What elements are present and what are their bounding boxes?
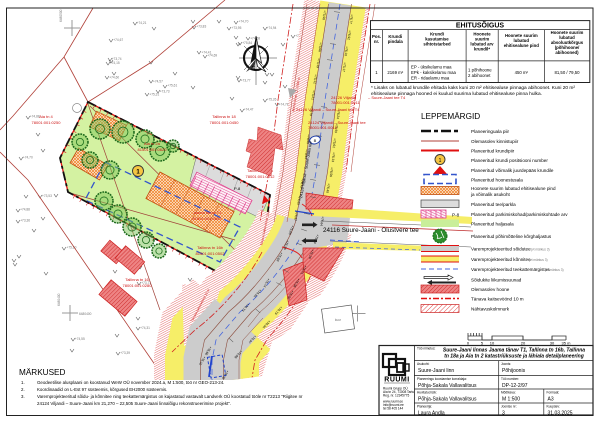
svg-text:(vt märkus 3): (vt märkus 3) [529, 258, 548, 262]
svg-text:Kuupäev:: Kuupäev: [547, 405, 561, 409]
svg-text:81501:001:0620: 81501:001:0620 [138, 147, 168, 152]
svg-text:+74,31: +74,31 [140, 326, 150, 330]
svg-text:78001:001:0012: 78001:001:0012 [308, 125, 338, 130]
svg-text:RUUMI: RUUMI [384, 377, 409, 384]
svg-text:Joonis:: Joonis: [501, 362, 511, 366]
svg-text:Varemprojekteeritud teekattemä: Varemprojekteeritud teekattemärgistus [471, 267, 550, 272]
svg-text:tn 18a ja Aia tn 2 katastriüks: tn 18a ja Aia tn 2 katastriüksuste ja lä… [444, 354, 584, 360]
svg-text:+73,73: +73,73 [160, 89, 170, 93]
svg-text:Reg. nr. 12345775: Reg. nr. 12345775 [383, 394, 409, 398]
svg-text:3.: 3. [21, 394, 25, 399]
svg-text:Planeeritud põhimõtteline kõrg: Planeeritud põhimõtteline kõrghaljastus [471, 234, 552, 239]
svg-text:Hoonete suurim lubatud ehitise: Hoonete suurim lubatud ehitisealune pind [471, 186, 556, 191]
svg-text:+74,41: +74,41 [202, 50, 212, 54]
svg-text:Nähtavuskolmnurk: Nähtavuskolmnurk [471, 307, 510, 312]
svg-text:3: 3 [502, 411, 505, 417]
svg-text:Planeeringuala piir: Planeeringuala piir [471, 129, 510, 134]
svg-text:78001:001:0450: 78001:001:0450 [210, 120, 240, 125]
svg-text:EHITUSÕIGUS: EHITUSÕIGUS [456, 21, 505, 30]
svg-text:Formaat:: Formaat: [547, 391, 560, 395]
svg-text:Olemasolev kinnistupiir: Olemasolev kinnistupiir [471, 139, 519, 144]
svg-text:6480500: 6480500 [59, 9, 63, 22]
svg-text:M 1:500: M 1:500 [502, 397, 520, 403]
svg-text:B: B [314, 138, 317, 143]
svg-text:Töö nimetus:: Töö nimetus: [417, 347, 436, 351]
svg-text:+73,53: +73,53 [42, 194, 52, 198]
svg-text:sihtotstarbed: sihtotstarbed [423, 42, 451, 47]
svg-text:MÄRKUSED: MÄRKUSED [19, 367, 65, 377]
svg-text:N: N [252, 66, 256, 72]
svg-text:krundil*: krundil* [474, 47, 490, 52]
svg-text:+75,84: +75,84 [242, 41, 252, 45]
svg-text:Suure-Jaani linn: Suure-Jaani linn [418, 368, 454, 374]
svg-text:Planeeritud parkimiskohad/park: Planeeritud parkimiskohad/parkimiskohtad… [471, 212, 568, 217]
svg-text:81501:001:0502: 81501:001:0502 [196, 251, 226, 256]
svg-text:ja võimalik asukoht: ja võimalik asukoht [470, 192, 511, 197]
svg-text:* Lisaks on lubatud krundile e: * Lisaks on lubatud krundile ehitada kak… [371, 85, 575, 91]
svg-text:+73,39: +73,39 [120, 351, 130, 355]
svg-text:+73,77: +73,77 [241, 78, 251, 82]
svg-text:Asukoht:: Asukoht: [417, 362, 430, 366]
svg-text:LEPPEMÄRGID: LEPPEMÄRGID [421, 111, 480, 121]
svg-text:Planeeritud võimalik juurdepää: Planeeritud võimalik juurdepääs krundile [471, 168, 554, 173]
svg-text:+74,60: +74,60 [109, 76, 119, 80]
svg-text:P-8: P-8 [234, 186, 241, 191]
svg-text:20: 20 [521, 341, 526, 346]
svg-text:Tallinna tn 16b: Tallinna tn 16b [197, 245, 224, 250]
svg-text:+74,21: +74,21 [137, 21, 147, 25]
svg-text:2.: 2. [21, 387, 25, 392]
svg-text:+73,36: +73,36 [20, 219, 30, 223]
svg-text:Koordinaadid on L-Est 97 süste: Koordinaadid on L-Est 97 süsteemis, kõrg… [37, 387, 167, 392]
svg-text:+74,58: +74,58 [250, 36, 260, 40]
svg-text:2 abihoonet: 2 abihoonet [468, 73, 491, 78]
svg-text:(vt märkus 3): (vt märkus 3) [531, 248, 550, 252]
svg-text:Tänava kaitsevöönd 10 m: Tänava kaitsevöönd 10 m [471, 297, 524, 302]
svg-text:Aia tn 4: Aia tn 4 [39, 114, 53, 119]
svg-text:30: 30 [550, 341, 555, 346]
svg-text:ehitisealuse pinnaga hooned ei: ehitisealuse pinnaga hooned ei kuulud su… [371, 91, 542, 97]
svg-text:Varemprojekteeritud kõnnitee: Varemprojekteeritud kõnnitee [471, 257, 531, 262]
svg-text:nr.: nr. [374, 39, 379, 44]
svg-text:EPk - kaksikelamu maa: EPk - kaksikelamu maa [411, 70, 457, 75]
svg-text:ehitisealune pind: ehitisealune pind [504, 43, 539, 48]
svg-text:+75,61: +75,61 [167, 84, 177, 88]
svg-text:Mõõtkava:: Mõõtkava: [501, 391, 516, 395]
svg-text:Varemprojekteeritud sõidu- ja: Varemprojekteeritud sõidu- ja kõnnitee n… [37, 394, 303, 399]
svg-text:Geodeetilise alusplaani on koo: Geodeetilise alusplaani on koostanud WeW… [37, 380, 224, 385]
svg-text:Põhijoonis: Põhijoonis [502, 368, 526, 374]
svg-text:Olemasolev hoone: Olemasolev hoone [471, 287, 510, 292]
svg-text:78001:001:0280: 78001:001:0280 [123, 283, 153, 288]
svg-text:+74,78: +74,78 [279, 102, 289, 106]
svg-text:10: 10 [490, 341, 495, 346]
svg-text:Põhja-Sakala Vallavalitsus: Põhja-Sakala Vallavalitsus [418, 397, 477, 403]
svg-text:EP - üksikelamu maa: EP - üksikelamu maa [411, 65, 452, 70]
svg-text:24126 Viljandi – Suure-Jaani t: 24126 Viljandi – Suure-Jaani tee T4 [296, 107, 360, 112]
svg-text:tel 58 405 144: tel 58 405 144 [383, 407, 403, 411]
svg-text:Aia tn 2a: Aia tn 2a [144, 141, 161, 146]
svg-text:kuur: kuur [335, 318, 342, 322]
svg-text:Tallinna tn 16: Tallinna tn 16 [125, 277, 149, 282]
svg-text:+74,88: +74,88 [20, 208, 30, 212]
svg-text:Planeeritud hoonestusala: Planeeritud hoonestusala [471, 178, 523, 183]
svg-text:DP-12-2/97: DP-12-2/97 [502, 383, 528, 389]
svg-text:Põhja-Sakala Vallavalitsus: Põhja-Sakala Vallavalitsus [418, 383, 477, 389]
svg-text:+74,47: +74,47 [244, 108, 254, 112]
svg-text:+74,94: +74,94 [267, 26, 277, 30]
svg-text:Joonise nr:: Joonise nr: [501, 405, 517, 409]
svg-text:Huvitatud isik:: Huvitatud isik: [417, 391, 437, 395]
svg-text:Varemprojekteeritud sõidutee: Varemprojekteeritud sõidutee [471, 247, 531, 252]
svg-text:+74,55: +74,55 [75, 337, 85, 341]
svg-text:35 m: 35 m [562, 341, 572, 346]
svg-text:6480400: 6480400 [57, 293, 61, 306]
svg-text:2169 m²: 2169 m² [387, 70, 403, 75]
svg-text:24124 Viljandi – Suure-Jaani k: 24124 Viljandi – Suure-Jaani km 21,270 –… [37, 401, 231, 406]
svg-text:81,50 / 79,50: 81,50 / 79,50 [554, 70, 580, 75]
svg-text:Töö number:: Töö number: [501, 377, 519, 381]
svg-text:+74,70: +74,70 [239, 20, 249, 24]
svg-text:Sõidukite liikumissuunad: Sõidukite liikumissuunad [471, 278, 522, 283]
svg-text:81501:001:0603: 81501:001:0603 [193, 216, 223, 221]
svg-text:Jaama tänav T1: Jaama tänav T1 [193, 210, 222, 215]
svg-text:Planeeritud tee/parkla: Planeeritud tee/parkla [471, 202, 516, 207]
svg-text:abihooned): abihooned) [555, 50, 579, 55]
svg-text:Planeeritud krundipiir: Planeeritud krundipiir [471, 149, 515, 154]
svg-text:Planeeringu koostamise korrald: Planeeringu koostamise korraldaja: [417, 377, 467, 381]
svg-text:1.: 1. [21, 380, 25, 385]
svg-text:78001:001:0250: 78001:001:0250 [32, 120, 62, 125]
svg-text:pindala: pindala [388, 39, 404, 44]
svg-text:A3: A3 [548, 397, 554, 403]
svg-text:+75,26: +75,26 [267, 98, 277, 102]
svg-text:P-8: P-8 [452, 213, 460, 218]
svg-text:+74,57: +74,57 [153, 79, 163, 83]
svg-text:+74,70: +74,70 [23, 156, 33, 160]
svg-text:6480400: 6480400 [79, 312, 92, 316]
svg-text:+74,67: +74,67 [113, 38, 123, 42]
svg-text:1 põhihoone: 1 põhihoone [468, 68, 492, 73]
svg-text:+73,83: +73,83 [196, 25, 206, 29]
svg-text:450 m²: 450 m² [515, 70, 529, 75]
svg-text:(vt märkus 3): (vt märkus 3) [545, 268, 564, 272]
svg-text:Planeeritud haljasala: Planeeritud haljasala [471, 222, 514, 227]
svg-text:ER - ridaelamu maa: ER - ridaelamu maa [411, 76, 450, 81]
svg-text:+73,95: +73,95 [232, 26, 242, 30]
svg-text:24116 Suure-Jaani - Olustvere: 24116 Suure-Jaani - Olustvere tee [323, 227, 419, 234]
svg-text:Tallinna tn 18: Tallinna tn 18 [212, 114, 236, 119]
svg-text:Planeerija:: Planeerija: [417, 405, 432, 409]
svg-text:78001:001:0011: 78001:001:0011 [331, 100, 360, 105]
svg-text:Laura Andla: Laura Andla [418, 411, 445, 417]
svg-text:1: 1 [439, 158, 442, 164]
svg-text:Planeeritud krundi positsiooni: Planeeritud krundi positsiooni number [471, 158, 548, 163]
svg-text:31.03.2025: 31.03.2025 [548, 411, 573, 417]
